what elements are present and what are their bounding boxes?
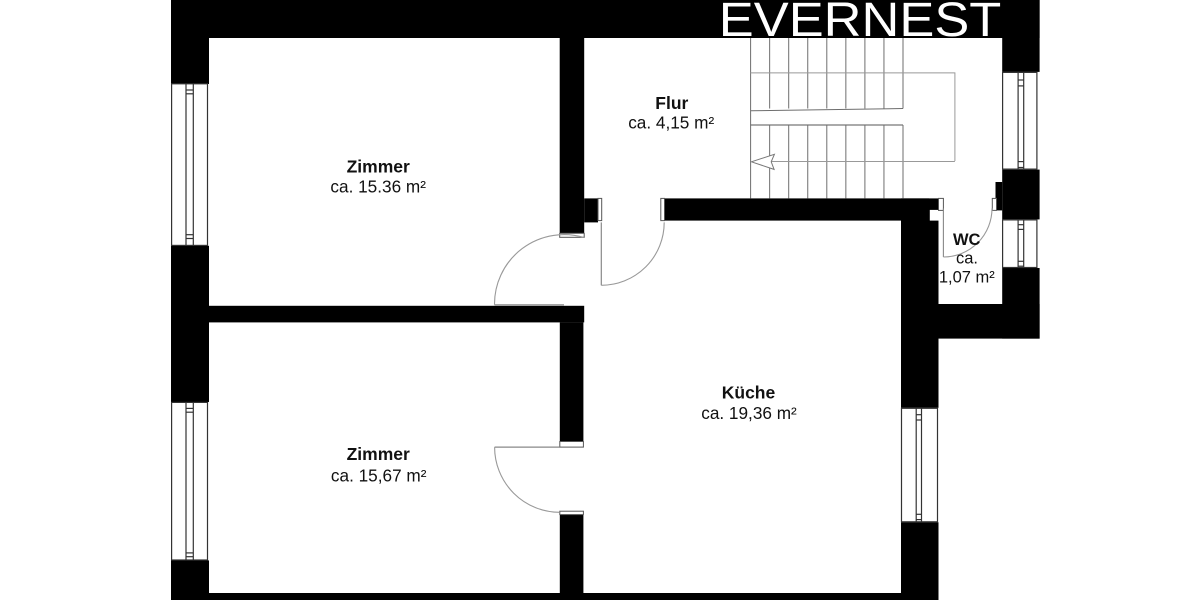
svg-text:ca. 4,15 m²: ca. 4,15 m² <box>628 112 714 132</box>
svg-text:Zimmer: Zimmer <box>347 156 410 176</box>
svg-text:EVERNEST: EVERNEST <box>719 0 1002 47</box>
svg-text:ca.: ca. <box>956 250 978 268</box>
svg-text:Zimmer: Zimmer <box>347 444 410 464</box>
svg-text:WC: WC <box>953 231 981 249</box>
svg-text:ca. 15,67 m²: ca. 15,67 m² <box>331 466 427 486</box>
svg-text:Küche: Küche <box>722 383 776 403</box>
svg-text:1,07 m²: 1,07 m² <box>939 268 995 286</box>
svg-text:ca. 19,36 m²: ca. 19,36 m² <box>701 403 797 423</box>
svg-text:Flur: Flur <box>655 93 688 113</box>
svg-text:ca. 15.36 m²: ca. 15.36 m² <box>330 176 426 196</box>
